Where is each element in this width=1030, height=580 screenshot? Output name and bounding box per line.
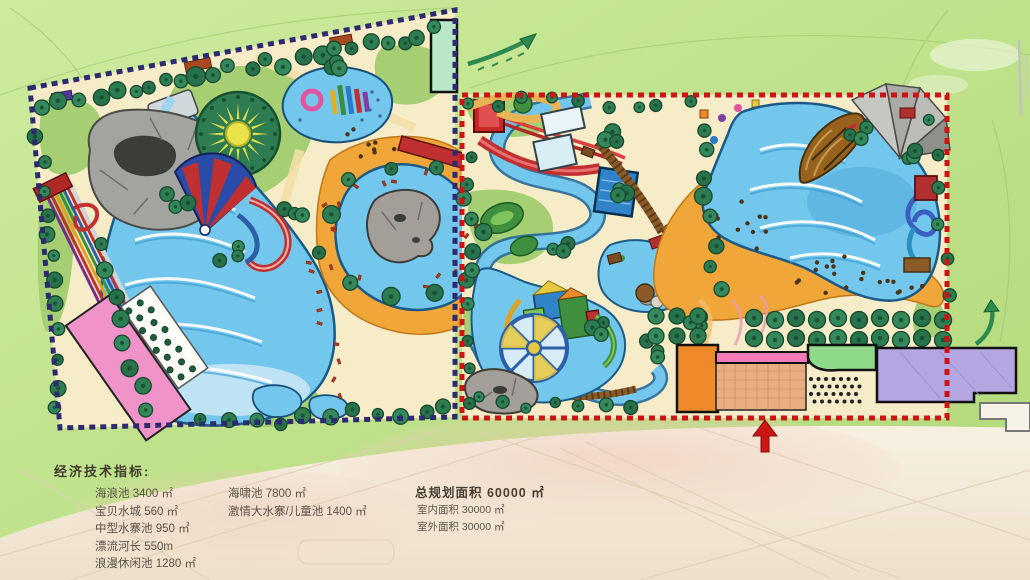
green-pavilion bbox=[808, 345, 876, 370]
water-wheel bbox=[501, 315, 567, 381]
legend-column-middle: 海啸池 7800 ㎡ 激情大水寨/儿童池 1400 ㎡ bbox=[228, 486, 367, 521]
entrance-plaza bbox=[716, 363, 806, 410]
legend-summary: 室内面积 30000 ㎡ 室外面积 30000 ㎡ bbox=[417, 502, 505, 535]
kids-pool bbox=[283, 67, 392, 142]
water-park-master-plan-page: 经济技术指标: 海浪池 3400 ㎡ 宝贝水城 560 ㎡ 中型水寨池 950 … bbox=[0, 0, 1030, 580]
legend-item: 室外面积 30000 ㎡ bbox=[417, 519, 505, 536]
legend-item: 激情大水寨/儿童池 1400 ㎡ bbox=[228, 504, 367, 522]
pink-walkway bbox=[716, 352, 808, 363]
legend-item: 室内面积 30000 ㎡ bbox=[417, 502, 505, 519]
legend-summary-title: 总规划面积 60000 ㎡ bbox=[415, 482, 545, 501]
legend-item: 浪漫休闲池 1280 ㎡ bbox=[95, 556, 196, 574]
legend-item: 海啸池 7800 ㎡ bbox=[228, 486, 367, 504]
legend-item: 宝贝水城 560 ㎡ bbox=[95, 504, 196, 522]
legend-title: 经济技术指标: bbox=[54, 461, 150, 480]
legend-item: 漂流河长 550m bbox=[95, 539, 196, 557]
legend-item: 中型水寨池 950 ㎡ bbox=[95, 521, 196, 539]
legend-item: 海浪池 3400 ㎡ bbox=[95, 486, 196, 504]
orange-building bbox=[677, 345, 718, 412]
legend-column-left: 海浪池 3400 ㎡ 宝贝水城 560 ㎡ 中型水寨池 950 ㎡ 漂流河长 5… bbox=[95, 486, 196, 574]
